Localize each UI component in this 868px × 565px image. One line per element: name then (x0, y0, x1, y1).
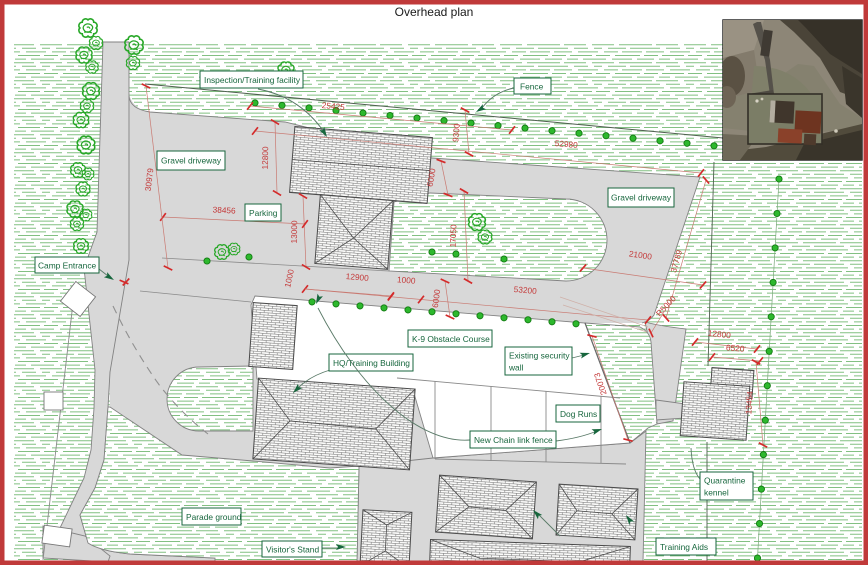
svg-text:Training Aids: Training Aids (660, 542, 708, 552)
svg-text:K-9 Obstacle Course: K-9 Obstacle Course (412, 334, 490, 344)
svg-text:38456: 38456 (212, 204, 236, 215)
svg-text:Overhead plan: Overhead plan (395, 5, 474, 19)
svg-text:Dog Runs: Dog Runs (560, 409, 597, 419)
svg-text:Gravel driveway: Gravel driveway (161, 156, 222, 166)
svg-text:HQ/Training Building: HQ/Training Building (333, 358, 410, 368)
svg-text:17050: 17050 (448, 224, 459, 248)
svg-text:53200: 53200 (513, 284, 537, 296)
svg-text:Camp Entrance: Camp Entrance (38, 261, 97, 271)
svg-text:25425: 25425 (321, 100, 345, 112)
svg-text:9300: 9300 (450, 123, 462, 143)
svg-text:12800: 12800 (260, 146, 270, 170)
svg-text:Parade ground: Parade ground (186, 512, 242, 522)
svg-text:Fence: Fence (520, 82, 544, 92)
svg-text:52980: 52980 (554, 138, 578, 150)
svg-text:1000: 1000 (397, 274, 417, 286)
svg-text:Parking: Parking (249, 208, 278, 218)
svg-text:wall: wall (508, 363, 524, 373)
svg-text:Inspection/Training facility: Inspection/Training facility (204, 75, 301, 85)
svg-text:12900: 12900 (345, 271, 369, 283)
svg-text:Visitor's Stand: Visitor's Stand (266, 545, 319, 555)
svg-text:13454: 13454 (743, 391, 755, 415)
svg-text:6520: 6520 (726, 342, 746, 354)
svg-text:New Chain link fence: New Chain link fence (474, 435, 553, 445)
svg-text:Existing security: Existing security (509, 351, 570, 361)
svg-text:kennel: kennel (704, 488, 729, 498)
svg-text:Gravel driveway: Gravel driveway (611, 193, 672, 203)
svg-text:Quarantine: Quarantine (704, 476, 746, 486)
